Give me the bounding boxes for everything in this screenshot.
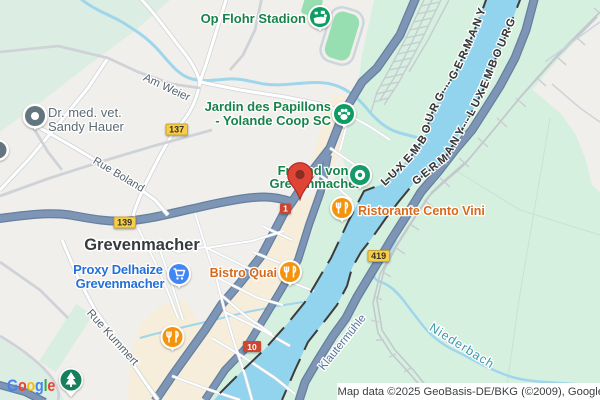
svg-text:Bistro Quai: Bistro Quai (210, 266, 277, 280)
svg-text:Sandy Hauer: Sandy Hauer (48, 119, 125, 134)
svg-text:Proxy Delhaize: Proxy Delhaize (73, 262, 163, 277)
svg-text:Jardin des Papillons: Jardin des Papillons (205, 99, 331, 114)
svg-text:1: 1 (283, 204, 288, 214)
svg-text:Grevenmacher: Grevenmacher (269, 176, 360, 191)
svg-text:10: 10 (247, 342, 257, 352)
svg-text:Dr. med. vet.: Dr. med. vet. (48, 105, 122, 120)
svg-text:Grevenmacher: Grevenmacher (84, 236, 200, 254)
svg-text:Ristorante Cento Vini: Ristorante Cento Vini (358, 204, 485, 218)
svg-text:- Yolande Coop SC: - Yolande Coop SC (215, 113, 331, 128)
svg-text:419: 419 (371, 251, 386, 261)
svg-text:Op Flohr Stadion: Op Flohr Stadion (201, 11, 306, 26)
svg-text:Google: Google (7, 377, 56, 395)
svg-text:Map data ©2025 GeoBasis-DE/BKG: Map data ©2025 GeoBasis-DE/BKG (©2009), … (338, 386, 600, 398)
svg-text:139: 139 (117, 218, 132, 228)
svg-text:137: 137 (169, 125, 184, 135)
svg-text:Grevenmacher: Grevenmacher (76, 276, 165, 291)
